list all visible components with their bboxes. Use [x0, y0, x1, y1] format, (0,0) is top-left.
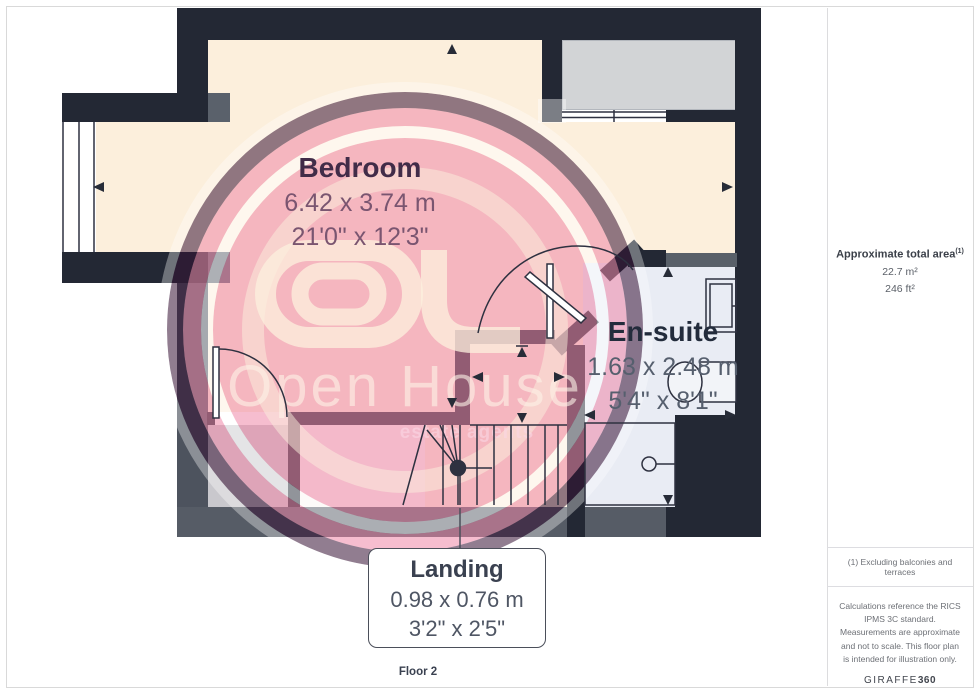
roof-dormer-area — [562, 40, 737, 110]
bedroom-dim-metric: 6.42 x 3.74 m — [220, 189, 500, 218]
wall-left — [177, 283, 208, 537]
wall-bottom — [177, 507, 666, 537]
landing-dim-imperial: 3'2" x 2'5" — [369, 616, 545, 642]
brand-suffix: 360 — [918, 675, 936, 686]
floorplan-page: Open House estate agents — [0, 0, 980, 693]
brand-logo: GIRAFFE360 — [837, 675, 963, 686]
wall-interior-main — [288, 412, 470, 425]
storage-room-floor — [208, 425, 288, 507]
landing-floor — [470, 344, 567, 425]
area-title: Approximate total area(1) — [827, 248, 973, 261]
wall-wing-top — [62, 93, 208, 122]
area-imperial: 246 ft² — [827, 283, 973, 295]
sidebar-disclaimer-box: Calculations reference the RICS IPMS 3C … — [827, 588, 973, 686]
ensuite-window — [562, 110, 666, 122]
bedroom-wing-floor — [93, 122, 208, 252]
wall-top — [177, 8, 761, 40]
bedroom-window — [62, 122, 96, 252]
wall-landing-left — [455, 330, 470, 412]
bedroom-dim-imperial: 21'0" x 12'3" — [220, 223, 500, 252]
landing-callout: Landing 0.98 x 0.76 m 3'2" x 2'5" — [368, 548, 546, 648]
wall-interior-stub — [207, 412, 215, 425]
sidebar-footnote-box: (1) Excluding balconies and terraces — [827, 547, 973, 587]
footnote-text: (1) Excluding balconies and terraces — [827, 557, 973, 577]
wall-ensuite-top-slate — [666, 253, 737, 267]
disclaimer-text: Calculations reference the RICS IPMS 3C … — [837, 600, 963, 666]
wall-landing-top — [455, 330, 555, 344]
area-metric: 22.7 m² — [827, 266, 973, 278]
landing-dim-metric: 0.98 x 0.76 m — [369, 587, 545, 613]
sidebar-area-block: Approximate total area(1) 22.7 m² 246 ft… — [827, 248, 973, 295]
wall-stub-bottom — [208, 252, 230, 283]
wall-wing-bottom — [62, 252, 208, 283]
area-title-text: Approximate total area — [836, 249, 955, 261]
landing-name: Landing — [369, 556, 545, 584]
area-footnote-marker: (1) — [955, 248, 964, 255]
wall-interior-vertical — [288, 412, 300, 507]
ensuite-name: En-suite — [570, 316, 756, 348]
bedroom-name: Bedroom — [220, 152, 500, 184]
brand-name: GIRAFFE — [864, 675, 918, 686]
wall-opening-marker — [538, 99, 566, 123]
wall-bottom-right-mass — [675, 415, 761, 537]
staircase-floor — [403, 425, 567, 507]
wall-stub-top — [208, 93, 230, 122]
ensuite-dim-imperial: 5'4" x 8'1" — [570, 387, 756, 416]
shower-alcove-floor — [583, 415, 675, 507]
stairwell-void-floor — [300, 425, 425, 507]
ensuite-label: En-suite 1.63 x 2.48 m 5'4" x 8'1" — [570, 316, 756, 416]
ensuite-dim-metric: 1.63 x 2.48 m — [570, 353, 756, 382]
wall-window-right — [666, 110, 737, 122]
floor-label: Floor 2 — [348, 666, 488, 678]
bedroom-label: Bedroom 6.42 x 3.74 m 21'0" x 12'3" — [220, 152, 500, 252]
